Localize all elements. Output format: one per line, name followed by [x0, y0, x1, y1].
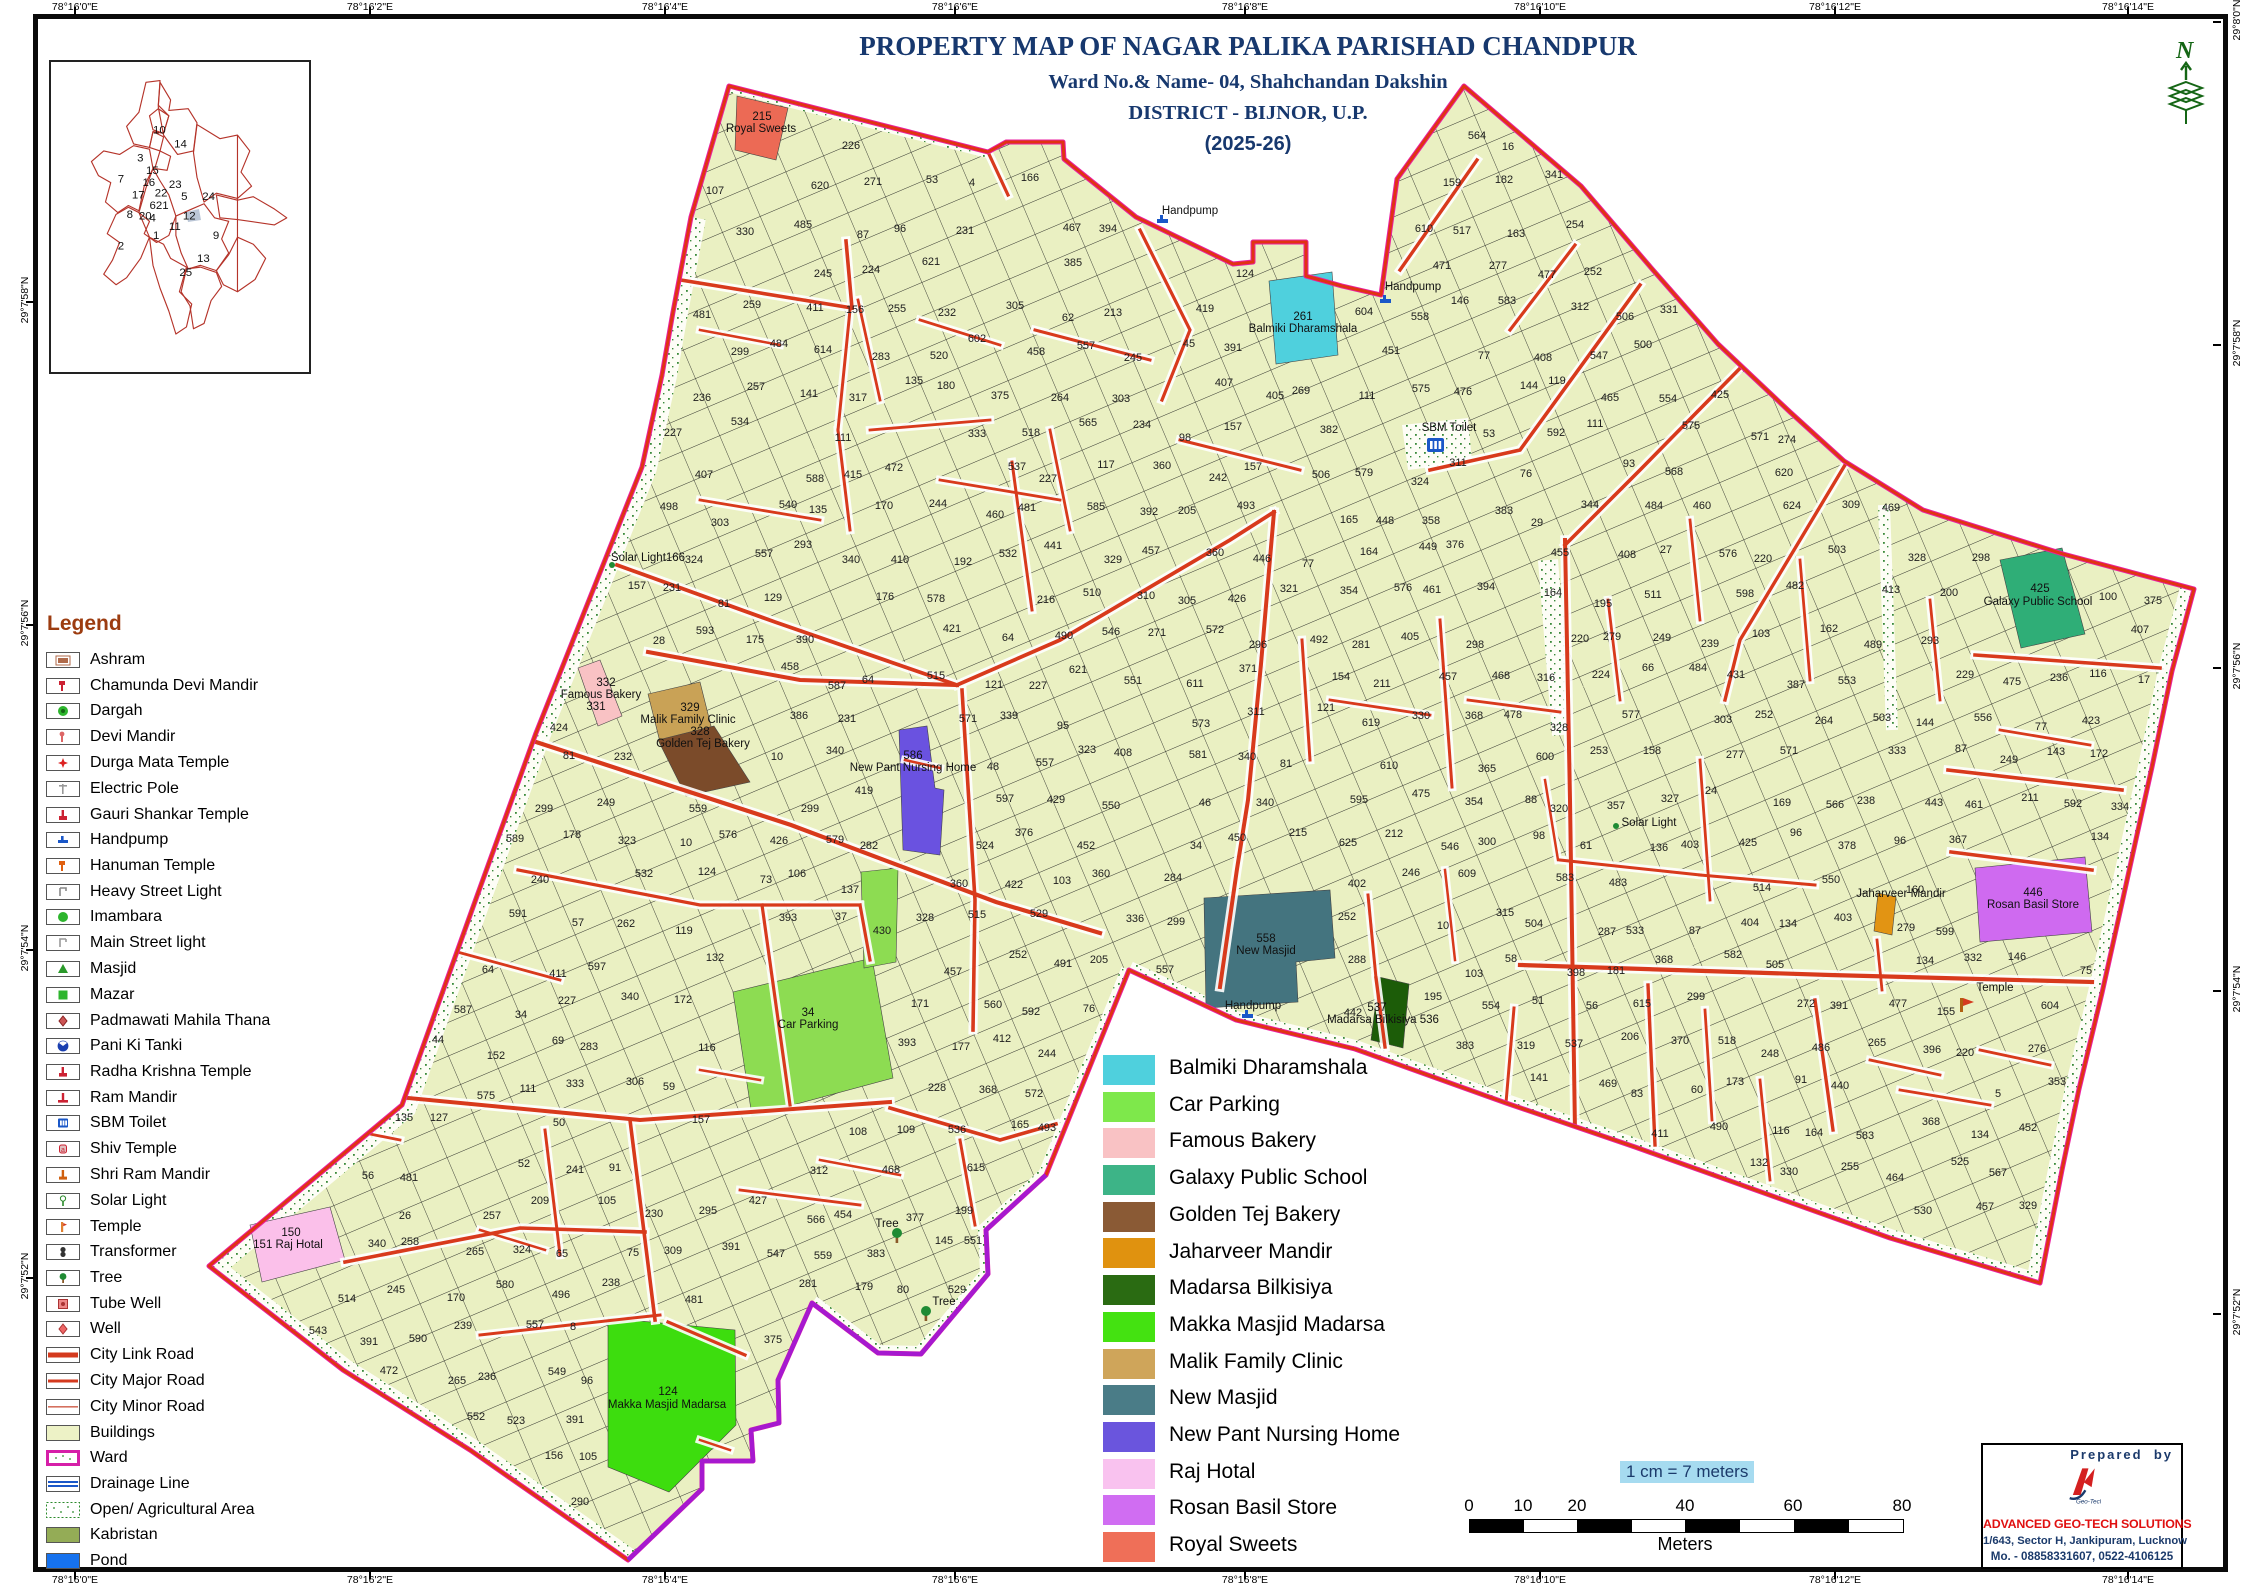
svg-text:408: 408	[1534, 352, 1552, 364]
svg-text:141: 141	[1530, 1072, 1548, 1084]
svg-text:422: 422	[1005, 879, 1023, 891]
svg-text:571: 571	[1780, 745, 1798, 757]
svg-text:468: 468	[1492, 670, 1510, 682]
svg-text:34: 34	[515, 1009, 527, 1021]
svg-text:Malik Family Clinic: Malik Family Clinic	[640, 714, 735, 726]
svg-text:469: 469	[1599, 1078, 1617, 1090]
svg-text:549: 549	[548, 1366, 566, 1378]
svg-text:455: 455	[1551, 547, 1569, 559]
svg-text:240: 240	[531, 874, 549, 886]
svg-text:333: 333	[968, 428, 986, 440]
svg-text:586: 586	[903, 750, 922, 762]
svg-text:96: 96	[1894, 835, 1906, 847]
svg-text:181: 181	[1607, 965, 1625, 977]
svg-text:108: 108	[849, 1126, 867, 1138]
svg-text:481: 481	[685, 1294, 703, 1306]
svg-text:Solar Light: Solar Light	[1622, 817, 1678, 829]
svg-text:576: 576	[719, 829, 737, 841]
svg-text:537: 537	[1008, 461, 1026, 473]
svg-text:170: 170	[875, 500, 893, 512]
svg-text:180: 180	[937, 380, 955, 392]
svg-text:144: 144	[1520, 380, 1538, 392]
svg-text:344: 344	[1581, 499, 1599, 511]
svg-text:283: 283	[872, 351, 890, 363]
svg-text:238: 238	[602, 1277, 620, 1289]
svg-text:249: 249	[2000, 754, 2018, 766]
svg-text:227: 227	[1029, 680, 1047, 692]
svg-text:10: 10	[153, 124, 166, 136]
svg-text:560: 560	[984, 999, 1002, 1011]
svg-text:111: 111	[1359, 390, 1376, 402]
svg-text:340: 340	[1238, 751, 1256, 763]
svg-text:293: 293	[1921, 635, 1939, 647]
svg-text:48: 48	[987, 761, 999, 773]
svg-text:179: 179	[855, 1281, 873, 1293]
svg-text:525: 525	[1951, 1156, 1969, 1168]
svg-text:367: 367	[1949, 834, 1967, 846]
svg-text:330: 330	[1780, 1166, 1798, 1178]
svg-text:504: 504	[1525, 918, 1543, 930]
svg-text:239: 239	[454, 1320, 472, 1332]
svg-text:58: 58	[1505, 953, 1517, 965]
svg-text:N: N	[2175, 38, 2195, 64]
svg-text:146: 146	[2008, 951, 2026, 963]
svg-text:Geo-Tech: Geo-Tech	[2076, 1499, 2101, 1505]
svg-text:192: 192	[954, 556, 972, 568]
svg-text:143: 143	[2047, 746, 2065, 758]
svg-text:598: 598	[1736, 588, 1754, 600]
svg-text:323: 323	[1078, 744, 1096, 756]
svg-text:105: 105	[598, 1195, 616, 1207]
svg-text:157: 157	[692, 1114, 710, 1126]
svg-text:390: 390	[796, 634, 814, 646]
svg-text:530: 530	[1914, 1205, 1932, 1217]
svg-text:103: 103	[1053, 875, 1071, 887]
svg-text:554: 554	[1659, 393, 1677, 405]
svg-text:529: 529	[948, 1284, 966, 1296]
svg-text:590: 590	[409, 1333, 427, 1345]
svg-text:10: 10	[680, 837, 692, 849]
svg-text:134: 134	[1916, 955, 1934, 967]
svg-text:327: 327	[1661, 793, 1679, 805]
svg-text:83: 83	[1631, 1088, 1643, 1100]
svg-text:155: 155	[1937, 1006, 1955, 1018]
svg-text:51: 51	[1532, 995, 1544, 1007]
svg-text:625: 625	[1339, 837, 1357, 849]
svg-text:424: 424	[550, 722, 568, 734]
svg-text:498: 498	[660, 501, 678, 513]
svg-text:330: 330	[736, 226, 754, 238]
svg-text:121: 121	[985, 679, 1003, 691]
svg-text:290: 290	[571, 1496, 589, 1508]
svg-text:321: 321	[1280, 583, 1298, 595]
svg-text:264: 264	[1815, 715, 1833, 727]
svg-text:172: 172	[2090, 748, 2108, 760]
svg-text:546: 546	[1441, 841, 1459, 853]
svg-text:284: 284	[1164, 872, 1182, 884]
svg-text:515: 515	[927, 670, 945, 682]
svg-text:491: 491	[1054, 958, 1072, 970]
svg-text:332: 332	[1964, 952, 1982, 964]
svg-text:583: 583	[1556, 872, 1574, 884]
svg-text:277: 277	[1489, 260, 1507, 272]
svg-text:426: 426	[1228, 593, 1246, 605]
svg-text:492: 492	[1310, 634, 1328, 646]
svg-text:77: 77	[1302, 558, 1314, 570]
svg-text:Golden Tej Bakery: Golden Tej Bakery	[656, 738, 750, 750]
svg-text:621: 621	[1069, 664, 1087, 676]
svg-text:323: 323	[618, 835, 636, 847]
svg-text:475: 475	[2003, 676, 2021, 688]
svg-text:45: 45	[1183, 338, 1195, 350]
svg-text:209: 209	[531, 1195, 549, 1207]
svg-text:393: 393	[779, 912, 797, 924]
svg-text:365: 365	[1478, 763, 1496, 775]
svg-text:106: 106	[788, 868, 806, 880]
svg-text:212: 212	[1385, 828, 1403, 840]
svg-text:457: 457	[1439, 671, 1457, 683]
svg-text:228: 228	[928, 1082, 946, 1094]
svg-text:111: 111	[1587, 418, 1604, 430]
svg-text:205: 205	[1178, 505, 1196, 517]
svg-text:Makka Masjid Madarsa: Makka Masjid Madarsa	[608, 1399, 727, 1411]
svg-text:169: 169	[1773, 797, 1791, 809]
svg-text:281: 281	[1352, 639, 1370, 651]
svg-text:Solar Light166: Solar Light166	[611, 552, 685, 564]
svg-text:410: 410	[891, 554, 909, 566]
svg-text:353: 353	[2048, 1076, 2066, 1088]
svg-text:255: 255	[888, 303, 906, 315]
svg-text:241: 241	[566, 1164, 584, 1176]
svg-text:518: 518	[1718, 1035, 1736, 1047]
svg-text:152: 152	[487, 1050, 505, 1062]
svg-text:200: 200	[1940, 587, 1958, 599]
svg-text:306: 306	[626, 1076, 644, 1088]
svg-text:60: 60	[1691, 1084, 1703, 1096]
svg-text:236: 236	[693, 392, 711, 404]
svg-text:296: 296	[1249, 639, 1267, 651]
svg-text:331: 331	[586, 701, 605, 713]
svg-text:124: 124	[658, 1386, 678, 1398]
svg-text:261: 261	[1293, 311, 1312, 323]
svg-text:10: 10	[1437, 920, 1449, 932]
svg-text:27: 27	[1660, 544, 1672, 556]
svg-text:550: 550	[1822, 874, 1840, 886]
svg-text:224: 224	[1592, 669, 1610, 681]
svg-text:490: 490	[1710, 1121, 1728, 1133]
svg-text:206: 206	[1621, 1031, 1639, 1043]
svg-text:220: 220	[1956, 1047, 1974, 1059]
svg-text:421: 421	[943, 623, 961, 635]
svg-text:26: 26	[399, 1210, 411, 1222]
svg-text:232: 232	[938, 307, 956, 319]
svg-text:476: 476	[1454, 386, 1472, 398]
svg-text:358: 358	[1422, 515, 1440, 527]
svg-text:164: 164	[1544, 587, 1562, 599]
svg-text:282: 282	[860, 840, 878, 852]
svg-text:427: 427	[749, 1195, 767, 1207]
svg-text:452: 452	[2019, 1122, 2037, 1134]
svg-text:386: 386	[790, 710, 808, 722]
svg-text:1: 1	[153, 230, 159, 242]
svg-text:556: 556	[1974, 712, 1992, 724]
svg-text:271: 271	[1148, 627, 1166, 639]
svg-text:575: 575	[1682, 420, 1700, 432]
svg-text:360: 360	[1206, 547, 1224, 559]
svg-text:303: 303	[1714, 714, 1732, 726]
svg-text:486: 486	[1812, 1042, 1830, 1054]
svg-text:619: 619	[1362, 717, 1380, 729]
svg-text:467: 467	[1063, 222, 1081, 234]
svg-text:283: 283	[580, 1041, 598, 1053]
svg-text:520: 520	[930, 350, 948, 362]
svg-text:317: 317	[849, 392, 867, 404]
svg-text:29: 29	[1531, 517, 1543, 529]
svg-text:391: 391	[1830, 1000, 1848, 1012]
svg-text:34: 34	[1190, 840, 1202, 852]
svg-text:429: 429	[1047, 794, 1065, 806]
svg-text:534: 534	[731, 416, 749, 428]
svg-text:276: 276	[2028, 1043, 2046, 1055]
svg-text:493: 493	[1237, 500, 1255, 512]
svg-text:481: 481	[400, 1172, 418, 1184]
svg-text:93: 93	[1623, 458, 1635, 470]
svg-text:581: 581	[1189, 749, 1207, 761]
svg-text:332: 332	[596, 677, 615, 689]
svg-text:56: 56	[1586, 1000, 1598, 1012]
svg-text:211: 211	[1373, 678, 1391, 690]
svg-text:376: 376	[1446, 539, 1464, 551]
svg-text:Galaxy Public School: Galaxy Public School	[1984, 596, 2093, 608]
svg-text:216: 216	[1037, 594, 1055, 606]
svg-text:211: 211	[2021, 792, 2039, 804]
svg-text:281: 281	[799, 1278, 817, 1290]
svg-text:75: 75	[2080, 965, 2092, 977]
svg-text:585: 585	[1087, 501, 1105, 513]
svg-text:572: 572	[1025, 1088, 1043, 1100]
svg-text:557: 557	[1036, 757, 1054, 769]
svg-text:536: 536	[948, 1124, 966, 1136]
svg-text:582: 582	[1724, 949, 1742, 961]
svg-text:396: 396	[1923, 1044, 1941, 1056]
svg-text:311: 311	[1449, 457, 1467, 469]
svg-text:156: 156	[846, 304, 864, 316]
svg-text:312: 312	[1571, 301, 1589, 313]
svg-text:615: 615	[1633, 998, 1651, 1010]
svg-text:481: 481	[1018, 502, 1036, 514]
svg-text:171: 171	[911, 998, 929, 1010]
svg-text:368: 368	[1922, 1116, 1940, 1128]
svg-text:230: 230	[645, 1208, 663, 1220]
svg-text:454: 454	[834, 1209, 852, 1221]
svg-text:620: 620	[1775, 467, 1793, 479]
svg-text:255: 255	[1841, 1161, 1859, 1173]
svg-text:554: 554	[1482, 1000, 1500, 1012]
svg-text:9: 9	[213, 230, 219, 242]
svg-text:245: 245	[387, 1284, 405, 1296]
svg-text:419: 419	[1196, 303, 1214, 315]
svg-text:205: 205	[1090, 954, 1108, 966]
svg-text:398: 398	[1567, 967, 1585, 979]
svg-text:163: 163	[1507, 228, 1525, 240]
svg-text:258: 258	[401, 1236, 419, 1248]
svg-text:490: 490	[1055, 630, 1073, 642]
svg-text:425: 425	[1711, 389, 1729, 401]
svg-text:96: 96	[894, 223, 906, 235]
svg-text:484: 484	[1645, 500, 1663, 512]
svg-text:87: 87	[1955, 743, 1967, 755]
svg-text:305: 305	[1006, 300, 1024, 312]
svg-text:592: 592	[1022, 1006, 1040, 1018]
svg-text:547: 547	[767, 1248, 785, 1260]
svg-text:91: 91	[1795, 1074, 1807, 1086]
svg-text:566: 566	[1826, 799, 1844, 811]
svg-text:165: 165	[1011, 1119, 1029, 1131]
svg-text:134: 134	[1971, 1129, 1989, 1141]
svg-text:124: 124	[698, 866, 716, 878]
svg-text:16: 16	[142, 177, 155, 189]
svg-text:91: 91	[609, 1162, 621, 1174]
svg-text:231: 231	[956, 225, 974, 237]
svg-text:465: 465	[1601, 392, 1619, 404]
svg-text:69: 69	[552, 1035, 564, 1047]
svg-text:157: 157	[1244, 461, 1262, 473]
svg-text:404: 404	[1741, 917, 1759, 929]
svg-text:602: 602	[968, 333, 986, 345]
svg-text:24: 24	[202, 191, 215, 203]
svg-text:265: 265	[466, 1246, 484, 1258]
svg-text:557: 557	[755, 548, 773, 560]
svg-text:44: 44	[432, 1034, 444, 1046]
svg-text:577: 577	[1622, 709, 1640, 721]
svg-text:510: 510	[1083, 587, 1101, 599]
svg-text:405: 405	[1401, 631, 1419, 643]
svg-text:299: 299	[731, 346, 749, 358]
svg-text:360: 360	[1092, 868, 1110, 880]
svg-text:116: 116	[1772, 1125, 1790, 1137]
svg-text:52: 52	[518, 1158, 530, 1170]
svg-text:298: 298	[1466, 639, 1484, 651]
svg-text:587: 587	[828, 680, 846, 692]
svg-text:303: 303	[1112, 393, 1130, 405]
svg-text:354: 354	[1340, 585, 1358, 597]
svg-text:248: 248	[1761, 1048, 1779, 1060]
svg-text:593: 593	[696, 625, 714, 637]
svg-text:252: 252	[1755, 709, 1773, 721]
svg-text:571: 571	[959, 713, 977, 725]
svg-text:503: 503	[1828, 544, 1846, 556]
svg-text:481: 481	[693, 309, 711, 321]
svg-text:391: 391	[722, 1241, 740, 1253]
svg-text:532: 532	[635, 868, 653, 880]
svg-text:316: 316	[1537, 672, 1555, 684]
svg-text:407: 407	[695, 469, 713, 481]
svg-text:65: 65	[556, 1248, 568, 1260]
svg-text:Famous Bakery: Famous Bakery	[561, 689, 642, 701]
svg-text:127: 127	[430, 1112, 448, 1124]
svg-text:375: 375	[764, 1334, 782, 1346]
svg-text:Handpump: Handpump	[1162, 205, 1218, 217]
svg-text:339: 339	[1000, 710, 1018, 722]
svg-text:392: 392	[1140, 506, 1158, 518]
svg-text:458: 458	[1027, 346, 1045, 358]
svg-text:249: 249	[597, 797, 615, 809]
svg-text:11: 11	[169, 221, 181, 233]
svg-text:269: 269	[1292, 385, 1310, 397]
svg-text:511: 511	[1644, 589, 1662, 601]
svg-text:451: 451	[1382, 345, 1400, 357]
svg-text:215: 215	[1289, 827, 1307, 839]
svg-text:299: 299	[535, 803, 553, 815]
svg-text:543: 543	[309, 1325, 327, 1337]
svg-text:146: 146	[1451, 295, 1469, 307]
svg-text:572: 572	[1206, 624, 1224, 636]
svg-text:87: 87	[1689, 925, 1701, 937]
svg-text:484: 484	[770, 338, 788, 350]
svg-text:50: 50	[553, 1117, 565, 1129]
svg-text:592: 592	[2064, 798, 2082, 810]
svg-text:64: 64	[482, 964, 494, 976]
svg-text:87: 87	[857, 229, 869, 241]
svg-text:576: 576	[1394, 582, 1412, 594]
svg-text:238: 238	[1857, 795, 1875, 807]
svg-text:234: 234	[1133, 419, 1151, 431]
svg-text:565: 565	[1079, 417, 1097, 429]
svg-text:591: 591	[509, 908, 527, 920]
svg-text:391: 391	[360, 1336, 378, 1348]
svg-text:105: 105	[579, 1451, 597, 1463]
svg-text:330: 330	[1412, 710, 1430, 722]
svg-text:135: 135	[905, 375, 923, 387]
svg-text:134: 134	[2091, 831, 2109, 843]
svg-text:324: 324	[1411, 476, 1429, 488]
svg-text:199: 199	[955, 1205, 973, 1217]
svg-text:597: 597	[996, 793, 1014, 805]
svg-text:425: 425	[2030, 583, 2049, 595]
svg-text:195: 195	[1424, 991, 1442, 1003]
svg-text:412: 412	[993, 1033, 1011, 1045]
svg-text:220: 220	[1571, 633, 1589, 645]
svg-text:558: 558	[1411, 311, 1429, 323]
svg-text:299: 299	[801, 803, 819, 815]
svg-text:220: 220	[1754, 553, 1772, 565]
svg-text:23: 23	[169, 179, 182, 191]
svg-text:446: 446	[1253, 553, 1271, 565]
svg-text:551: 551	[964, 1235, 982, 1247]
svg-text:517: 517	[1453, 225, 1471, 237]
svg-text:600: 600	[1536, 751, 1554, 763]
svg-text:Tree: Tree	[932, 1296, 955, 1308]
svg-text:New Masjid: New Masjid	[1236, 945, 1295, 957]
svg-text:411: 411	[549, 968, 567, 980]
svg-text:620: 620	[811, 180, 829, 192]
svg-text:236: 236	[2050, 672, 2068, 684]
svg-text:145: 145	[935, 1235, 953, 1247]
svg-text:121: 121	[1317, 702, 1335, 714]
svg-text:299: 299	[1167, 916, 1185, 928]
svg-text:157: 157	[628, 580, 646, 592]
svg-text:357: 357	[1607, 800, 1625, 812]
svg-text:559: 559	[689, 803, 707, 815]
svg-text:Temple: Temple	[1976, 982, 2013, 994]
svg-text:529: 529	[1030, 908, 1048, 920]
svg-text:76: 76	[1083, 1003, 1095, 1015]
svg-text:589: 589	[506, 833, 524, 845]
svg-text:119: 119	[675, 925, 693, 937]
svg-text:385: 385	[1064, 257, 1082, 269]
svg-text:279: 279	[1603, 631, 1621, 643]
svg-text:377: 377	[906, 1212, 924, 1224]
